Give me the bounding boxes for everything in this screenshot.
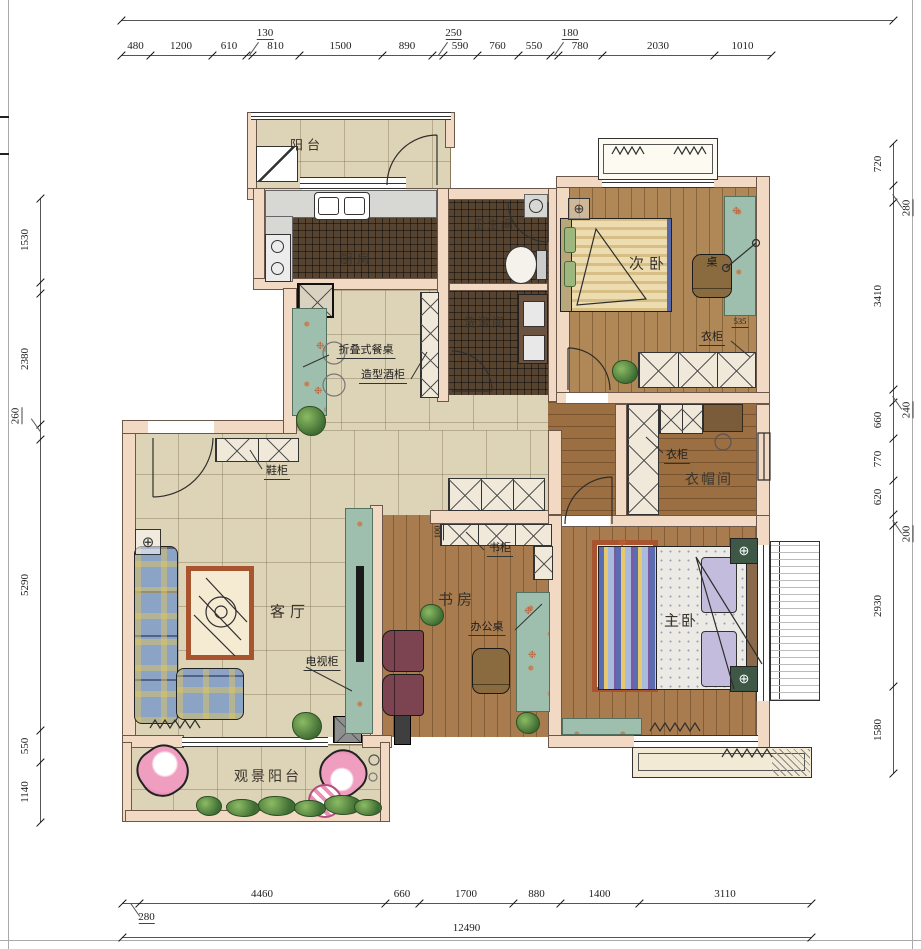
dim-value-2380: 2380 bbox=[19, 348, 31, 370]
annotation-office-desk: 办公桌 bbox=[469, 618, 506, 636]
dim-value-180: 180 bbox=[562, 27, 579, 40]
bay-window-inner-line bbox=[603, 144, 713, 174]
washroom-vanity bbox=[518, 294, 548, 364]
sink-basin bbox=[344, 197, 365, 215]
dim-value-5290: 5290 bbox=[19, 574, 31, 596]
dim-value-2030: 2030 bbox=[647, 40, 669, 52]
cloakroom-top-cabinet bbox=[659, 404, 703, 434]
dim-value-620: 620 bbox=[872, 489, 884, 506]
bay-window-right bbox=[770, 541, 820, 701]
wall-segment bbox=[756, 404, 770, 518]
room-label-balcony-top: 阳台 bbox=[290, 135, 324, 154]
window bbox=[756, 545, 770, 701]
annotation-wine-cabinet: 造型酒柜 bbox=[359, 366, 407, 384]
leaf-decoration: ❉ bbox=[314, 386, 322, 397]
dim-value-1530: 1530 bbox=[19, 229, 31, 251]
annotation-dim-535: 535 bbox=[732, 316, 749, 328]
sofa-chaise bbox=[176, 668, 244, 720]
wall-segment bbox=[449, 283, 548, 291]
bay-window-hatch bbox=[772, 749, 810, 776]
nightstand: ⊕ bbox=[730, 538, 758, 564]
annotation-wardrobe-bedroom2: 衣柜 bbox=[699, 328, 725, 346]
dim-value-260: 260 bbox=[10, 407, 23, 424]
toilet bbox=[505, 246, 537, 284]
bay-window-top bbox=[598, 138, 718, 180]
bath-sink bbox=[524, 194, 548, 218]
leaf-decoration: ❉ bbox=[732, 206, 740, 217]
page-frame-bottom bbox=[0, 940, 921, 941]
hall-cabinet bbox=[448, 478, 545, 511]
vanity-sink bbox=[523, 335, 545, 361]
dim-value-280: 280 bbox=[138, 911, 155, 924]
dim-value-200: 200 bbox=[901, 525, 914, 542]
annotation-bookcase: 书柜 bbox=[487, 539, 513, 557]
dim-value-760: 760 bbox=[489, 40, 506, 52]
plant bbox=[292, 712, 322, 740]
dim-value-610: 610 bbox=[221, 40, 238, 52]
dim-value-780: 780 bbox=[572, 40, 589, 52]
pillow bbox=[564, 227, 576, 253]
dim-value-1140: 1140 bbox=[19, 781, 31, 803]
plant bbox=[258, 796, 296, 816]
dim-value-250: 250 bbox=[445, 27, 462, 40]
cloakroom-shelf bbox=[703, 404, 743, 432]
door-opening bbox=[148, 421, 214, 433]
leaf-decoration: ❉ bbox=[316, 341, 324, 352]
pillow bbox=[701, 557, 737, 613]
dim-value-130: 130 bbox=[257, 27, 274, 40]
dim-value-810: 810 bbox=[267, 40, 284, 52]
room-label-bathroom: 卫生间 bbox=[473, 216, 515, 233]
leaf-decoration: ❉ bbox=[528, 650, 536, 661]
wall-segment bbox=[756, 176, 770, 404]
room-label-second-bedroom: 次卧 bbox=[629, 253, 669, 274]
kitchen-sink bbox=[314, 192, 370, 220]
wardrobe-cloakroom bbox=[627, 404, 659, 515]
dim-value-720: 720 bbox=[872, 156, 884, 173]
plant bbox=[196, 796, 222, 816]
nightstand: ⊕ bbox=[730, 666, 758, 692]
sink-bowl bbox=[529, 199, 543, 213]
page-frame-left bbox=[8, 0, 9, 949]
dim-value-4460: 4460 bbox=[251, 888, 273, 900]
wall-segment bbox=[615, 404, 627, 518]
ceiling-lamp-symbol: ⊕ bbox=[135, 529, 161, 555]
room-label-master-bedroom: 主卧 bbox=[664, 610, 698, 631]
room-label-view-balcony: 观景阳台 bbox=[234, 766, 302, 786]
dim-line-right bbox=[893, 143, 894, 773]
plant bbox=[612, 360, 638, 384]
burner bbox=[271, 262, 284, 275]
wardrobe-bedroom2 bbox=[638, 352, 756, 388]
dim-line-top bbox=[121, 55, 771, 56]
window bbox=[300, 177, 406, 189]
door-opening bbox=[566, 393, 608, 403]
dim-value-890: 890 bbox=[399, 40, 416, 52]
door-opening bbox=[560, 516, 610, 526]
dim-value-1400: 1400 bbox=[589, 888, 611, 900]
window bbox=[251, 112, 451, 120]
dim-value-280: 280 bbox=[901, 199, 914, 216]
dim-value-1700: 1700 bbox=[455, 888, 477, 900]
dim-value-1500: 1500 bbox=[330, 40, 352, 52]
dim-value-1010: 1010 bbox=[732, 40, 754, 52]
dim-line-bottom bbox=[122, 903, 811, 904]
sink-basin bbox=[318, 197, 339, 215]
room-label-living-room: 客厅 bbox=[270, 601, 310, 622]
dim-value-660: 660 bbox=[394, 888, 411, 900]
room-label-study: 书房 bbox=[438, 589, 476, 610]
tv-set bbox=[356, 566, 364, 662]
study-armchair bbox=[382, 630, 424, 672]
plant bbox=[354, 799, 382, 816]
dim-value-770: 770 bbox=[872, 451, 884, 468]
dim-value-590: 590 bbox=[452, 40, 469, 52]
annotation-tv-cabinet: 电视柜 bbox=[304, 653, 341, 671]
wall-segment bbox=[430, 510, 562, 524]
dim-value-3410: 3410 bbox=[872, 285, 884, 307]
annotation-dim-100: 100 bbox=[432, 524, 444, 541]
master-low-cabinet bbox=[562, 718, 642, 735]
leaf-decoration: ❉ bbox=[524, 606, 532, 617]
bookcase-column bbox=[533, 546, 553, 580]
bay-window-bottom bbox=[632, 747, 812, 778]
shoe-cabinet bbox=[215, 438, 299, 462]
frame-mark bbox=[0, 116, 9, 118]
wine-cabinet bbox=[420, 292, 439, 398]
plant bbox=[226, 799, 260, 817]
living-room-rug bbox=[186, 566, 254, 660]
dim-value-660: 660 bbox=[872, 412, 884, 429]
dim-value-880: 880 bbox=[528, 888, 545, 900]
dim-value-12490: 12490 bbox=[453, 922, 481, 934]
dim-line-bottom_total bbox=[122, 937, 811, 938]
leaf-decoration: ❉ bbox=[618, 538, 626, 549]
plant bbox=[294, 800, 326, 817]
plant bbox=[516, 712, 540, 734]
dining-side-cabinet bbox=[292, 308, 327, 416]
floor-plan-drawing: ⊕ ⊕ ⊕ ⊕ ❉ ❉ ❉ ❉ ❉ ❉ bbox=[0, 0, 921, 949]
plant bbox=[296, 406, 326, 436]
annotation-wardrobe-cloakroom: 衣柜 bbox=[664, 446, 690, 464]
pillow bbox=[564, 261, 576, 287]
dim-value-2930: 2930 bbox=[872, 595, 884, 617]
annotation-shoe-cabinet: 鞋柜 bbox=[264, 462, 290, 480]
blanket bbox=[599, 547, 657, 689]
vanity-sink bbox=[523, 301, 545, 327]
annotation-desk-bedroom2: 桌 bbox=[705, 254, 720, 271]
room-label-washroom: 洗漱间 bbox=[464, 314, 506, 331]
sofa bbox=[134, 546, 178, 724]
dim-value-1200: 1200 bbox=[170, 40, 192, 52]
dim-value-480: 480 bbox=[127, 40, 144, 52]
room-label-kitchen: 厨房 bbox=[340, 249, 374, 268]
dim-value-550: 550 bbox=[526, 40, 543, 52]
room-label-cloakroom: 衣帽间 bbox=[685, 469, 733, 489]
burner bbox=[271, 240, 284, 253]
wall-segment bbox=[253, 188, 265, 290]
toilet-tank bbox=[536, 250, 547, 280]
structural-post bbox=[394, 712, 411, 745]
dim-value-3110: 3110 bbox=[714, 888, 736, 900]
ceiling-lamp-symbol: ⊕ bbox=[568, 198, 590, 220]
dim-line-top_overall bbox=[121, 20, 893, 21]
dim-value-1580: 1580 bbox=[872, 719, 884, 741]
frame-mark bbox=[0, 153, 9, 155]
page-frame-right bbox=[912, 0, 913, 949]
office-chair bbox=[472, 648, 510, 694]
dim-value-240: 240 bbox=[901, 401, 914, 418]
study-armchair bbox=[382, 674, 424, 716]
stove bbox=[265, 234, 291, 282]
dim-value-550: 550 bbox=[19, 738, 31, 755]
wall-segment bbox=[548, 430, 562, 515]
annotation-folding-dining-table: 折叠式餐桌 bbox=[337, 341, 396, 359]
